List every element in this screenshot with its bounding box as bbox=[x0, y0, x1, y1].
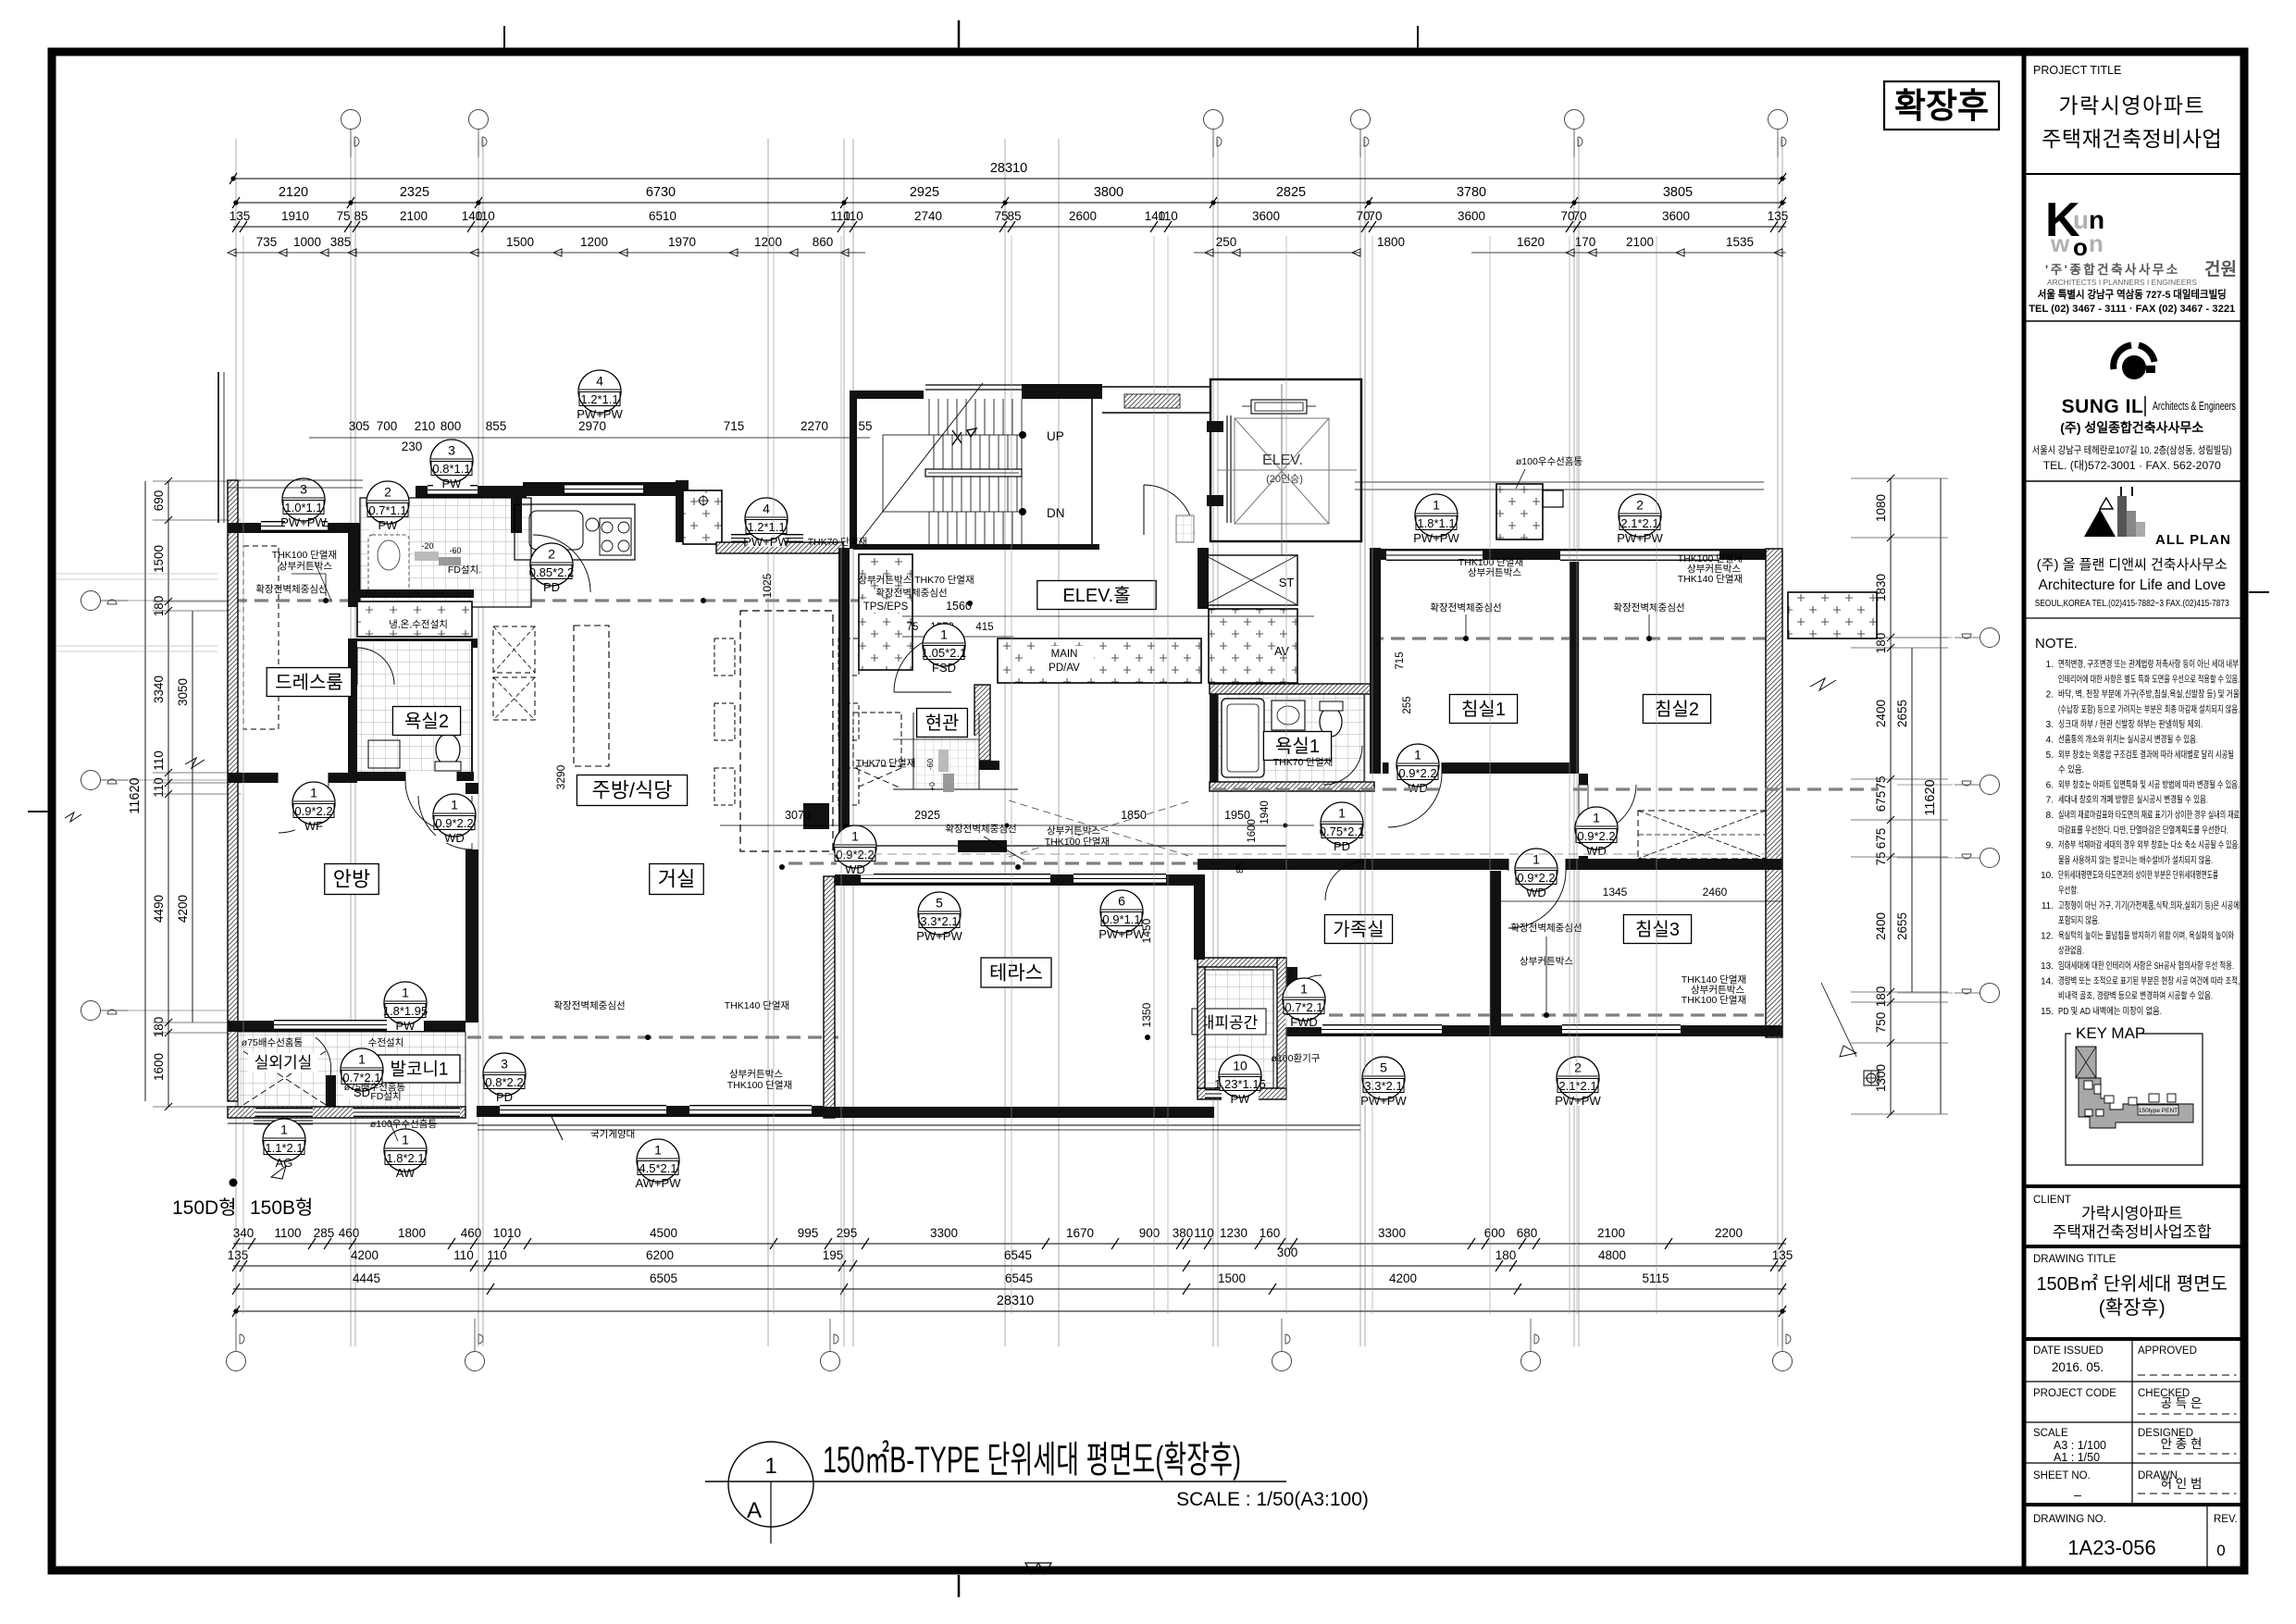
svg-text:2200: 2200 bbox=[1715, 1226, 1743, 1240]
svg-text:1.2*1.1: 1.2*1.1 bbox=[580, 392, 618, 406]
svg-text:실내의 재료마감표와 타도면의 재료 표기가 상이한 경우: 실내의 재료마감표와 타도면의 재료 표기가 상이한 경우 실내의 재료 bbox=[2058, 809, 2240, 821]
svg-text:1: 1 bbox=[1338, 806, 1346, 821]
svg-text:1600: 1600 bbox=[152, 1053, 166, 1081]
svg-text:ELEV.: ELEV. bbox=[1262, 452, 1303, 468]
svg-text:1500: 1500 bbox=[152, 545, 166, 573]
svg-text:1345: 1345 bbox=[1603, 886, 1628, 899]
svg-text:NOTE.: NOTE. bbox=[2035, 636, 2078, 651]
svg-text:건원: 건원 bbox=[2204, 259, 2237, 279]
svg-text:THK140 단열재: THK140 단열재 bbox=[725, 1000, 789, 1011]
svg-text:3290: 3290 bbox=[554, 764, 567, 789]
svg-text:300: 300 bbox=[1277, 1246, 1298, 1259]
svg-text:3050: 3050 bbox=[176, 678, 190, 706]
svg-text:TEL. (대)572-3001 · FAX. 562-20: TEL. (대)572-3001 · FAX. 562-2070 bbox=[2043, 459, 2221, 472]
svg-text:735: 735 bbox=[256, 235, 278, 249]
svg-text:SCALE : 1/50(A3:100): SCALE : 1/50(A3:100) bbox=[1176, 1489, 1369, 1510]
svg-text:마감표를 우선한다. 다만, 단열마감은 단열계획도를 우선: 마감표를 우선한다. 다만, 단열마감은 단열계획도를 우선한다. bbox=[2058, 824, 2228, 836]
svg-text:1080: 1080 bbox=[1874, 494, 1888, 522]
svg-text:PD: PD bbox=[1334, 839, 1350, 853]
svg-text:75: 75 bbox=[907, 622, 919, 633]
svg-text:1800: 1800 bbox=[398, 1226, 426, 1240]
svg-text:2270: 2270 bbox=[800, 419, 828, 433]
svg-text:FD설치: FD설치 bbox=[370, 1091, 401, 1102]
svg-text:3300: 3300 bbox=[1378, 1226, 1406, 1240]
svg-text:1200: 1200 bbox=[754, 235, 782, 249]
svg-text:0.85*2.2: 0.85*2.2 bbox=[529, 565, 574, 579]
svg-text:0: 0 bbox=[2216, 1542, 2225, 1559]
svg-text:6545: 6545 bbox=[1005, 1271, 1033, 1285]
svg-text:CLIENT: CLIENT bbox=[2033, 1195, 2071, 1206]
svg-text:THK70 단열재: THK70 단열재 bbox=[808, 537, 868, 548]
svg-text:6510: 6510 bbox=[649, 209, 676, 223]
svg-text:2740: 2740 bbox=[914, 209, 942, 223]
svg-text:2925: 2925 bbox=[914, 809, 940, 822]
svg-text:12.: 12. bbox=[2041, 931, 2054, 941]
svg-text:1230: 1230 bbox=[1220, 1226, 1247, 1240]
svg-text:85: 85 bbox=[1007, 209, 1021, 223]
svg-text:2016. 05.: 2016. 05. bbox=[2052, 1360, 2104, 1374]
svg-text:우선함.: 우선함. bbox=[2058, 886, 2079, 897]
svg-text:3: 3 bbox=[448, 443, 455, 458]
svg-text:2325: 2325 bbox=[400, 185, 429, 200]
svg-text:포함되지 않음.: 포함되지 않음. bbox=[2058, 915, 2100, 926]
svg-text:2655: 2655 bbox=[1895, 700, 1909, 727]
svg-text:-60: -60 bbox=[449, 546, 461, 555]
svg-text:A: A bbox=[747, 1498, 762, 1523]
svg-text:UP: UP bbox=[1047, 429, 1064, 443]
svg-text:–: – bbox=[2074, 1487, 2081, 1502]
svg-text:180: 180 bbox=[152, 1017, 166, 1038]
svg-text:1940: 1940 bbox=[1260, 800, 1271, 824]
svg-text:(확장후): (확장후) bbox=[2099, 1297, 2166, 1319]
svg-text:2400: 2400 bbox=[1874, 912, 1888, 940]
svg-text:3780: 3780 bbox=[1457, 185, 1486, 200]
svg-text:28310: 28310 bbox=[990, 161, 1027, 176]
svg-text:690: 690 bbox=[152, 490, 166, 512]
svg-text:PW: PW bbox=[396, 1019, 416, 1033]
svg-text:110: 110 bbox=[152, 777, 166, 798]
svg-text:0.9*2.2: 0.9*2.2 bbox=[1577, 829, 1615, 843]
svg-text:서울 특별시 강남구 역삼동 727-5 대일테크빌딩: 서울 특별시 강남구 역삼동 727-5 대일테크빌딩 bbox=[2038, 288, 2227, 301]
svg-text:서울시 강남구 테헤란로107길 10, 2층(삼성동, 성: 서울시 강남구 테헤란로107길 10, 2층(삼성동, 성림빌딩) bbox=[2032, 444, 2232, 456]
svg-text:3: 3 bbox=[300, 482, 307, 497]
svg-text:주택재건축정비사업: 주택재건축정비사업 bbox=[2042, 127, 2222, 151]
svg-text:255: 255 bbox=[1402, 696, 1413, 713]
svg-text:KEY MAP: KEY MAP bbox=[2076, 1024, 2145, 1042]
svg-text:1910: 1910 bbox=[281, 209, 309, 223]
svg-text:DATE ISSUED: DATE ISSUED bbox=[2033, 1345, 2104, 1357]
svg-text:THK100 단열재: THK100 단열재 bbox=[727, 1080, 792, 1091]
svg-text:85: 85 bbox=[1235, 862, 1246, 874]
svg-text:75: 75 bbox=[994, 209, 1008, 223]
svg-text:6730: 6730 bbox=[646, 185, 676, 200]
svg-text:안 종 현: 안 종 현 bbox=[2161, 1437, 2203, 1451]
svg-text:180: 180 bbox=[1496, 1248, 1517, 1262]
svg-text:460: 460 bbox=[461, 1226, 482, 1240]
svg-text:2825: 2825 bbox=[1276, 185, 1306, 200]
svg-text:4200: 4200 bbox=[176, 895, 190, 923]
svg-text:TEL (02) 3467 - 3111 · FAX (: TEL (02) 3467 - 3111 · FAX (02) 3467 - 3… bbox=[2029, 304, 2235, 315]
svg-text:1: 1 bbox=[1593, 811, 1600, 825]
svg-text:외부 창호는 외풍압 구조검토 결과에 따라 세대별로 달리: 외부 창호는 외풍압 구조검토 결과에 따라 세대별로 달리 시공될 bbox=[2058, 749, 2234, 761]
svg-text:외부 창호는 아파트 입면특화 및 시공 방법에 따라 변경: 외부 창호는 아파트 입면특화 및 시공 방법에 따라 변경될 수 있음. bbox=[2058, 778, 2240, 790]
svg-text:1600: 1600 bbox=[1247, 819, 1258, 843]
svg-text:1670: 1670 bbox=[1066, 1226, 1094, 1240]
svg-text:FWD: FWD bbox=[1290, 1015, 1318, 1029]
svg-text:170: 170 bbox=[1575, 235, 1596, 249]
svg-text:75: 75 bbox=[1874, 851, 1888, 865]
svg-text:공 득 은: 공 득 은 bbox=[2161, 1396, 2203, 1410]
svg-text:1: 1 bbox=[280, 1122, 288, 1137]
svg-text:1.8*2.1: 1.8*2.1 bbox=[386, 1151, 424, 1165]
svg-text:거실: 거실 bbox=[658, 868, 695, 891]
svg-text:냉,온,수전설치: 냉,온,수전설치 bbox=[389, 619, 448, 630]
svg-text:460: 460 bbox=[339, 1226, 360, 1240]
svg-text:110: 110 bbox=[152, 750, 166, 771]
svg-text:PW+PW: PW+PW bbox=[743, 535, 789, 549]
svg-text:150D형: 150D형 bbox=[172, 1197, 237, 1219]
svg-text:4490: 4490 bbox=[152, 895, 166, 923]
svg-text:저층부 석재마감 세대의 경우 외부 창호는 다소 축소 시: 저층부 석재마감 세대의 경우 외부 창호는 다소 축소 시공될 수 있음. bbox=[2058, 839, 2240, 851]
svg-text:비내력 골조, 경량벽 등으로 변경하여 시공할 수 있음.: 비내력 골조, 경량벽 등으로 변경하여 시공할 수 있음. bbox=[2058, 990, 2213, 1002]
svg-text:110: 110 bbox=[1158, 209, 1178, 223]
svg-text:11620: 11620 bbox=[1923, 779, 1938, 815]
svg-text:고정형이 아닌 가구, 기기(가전제품,식탁,의자,실외기: 고정형이 아닌 가구, 기기(가전제품,식탁,의자,실외기 등)은 시공에 bbox=[2058, 900, 2240, 911]
svg-text:PD: PD bbox=[543, 580, 560, 594]
svg-text:180: 180 bbox=[1874, 986, 1888, 1008]
svg-text:ø100우수선홈통: ø100우수선홈통 bbox=[1516, 455, 1583, 467]
svg-text:3800: 3800 bbox=[1094, 185, 1123, 200]
svg-text:AW: AW bbox=[396, 1166, 416, 1180]
svg-text:110: 110 bbox=[475, 209, 495, 223]
svg-text:85: 85 bbox=[354, 209, 367, 223]
svg-text:0.7*2.1: 0.7*2.1 bbox=[1285, 1000, 1322, 1014]
svg-text:10.: 10. bbox=[2041, 871, 2054, 881]
svg-text:욕실2: 욕실2 bbox=[404, 711, 449, 732]
svg-text:4445: 4445 bbox=[353, 1271, 380, 1285]
svg-text:5: 5 bbox=[936, 896, 943, 911]
svg-text:3805: 3805 bbox=[1663, 185, 1693, 200]
svg-text:ø100환기구: ø100환기구 bbox=[1272, 1053, 1321, 1064]
svg-text:160: 160 bbox=[1260, 1226, 1281, 1240]
svg-text:THK100 단열재: THK100 단열재 bbox=[272, 550, 337, 561]
svg-text:135: 135 bbox=[228, 1248, 249, 1262]
svg-text:28310: 28310 bbox=[997, 1294, 1034, 1308]
svg-text:WF: WF bbox=[304, 819, 323, 833]
svg-text:75: 75 bbox=[1874, 775, 1888, 789]
svg-text:욕실1: 욕실1 bbox=[1275, 736, 1320, 757]
svg-text:675: 675 bbox=[1874, 791, 1888, 812]
svg-text:800: 800 bbox=[441, 419, 462, 433]
svg-text:2970: 2970 bbox=[578, 419, 606, 433]
svg-text:1: 1 bbox=[940, 627, 948, 642]
svg-text:1A23-056: 1A23-056 bbox=[2067, 1536, 2155, 1559]
svg-text:2925: 2925 bbox=[910, 185, 939, 200]
svg-text:-20: -20 bbox=[421, 541, 433, 551]
svg-text:WD: WD bbox=[444, 831, 465, 845]
svg-text:600: 600 bbox=[1484, 1226, 1506, 1240]
svg-text:150㎡B-TYPE 단위세대 평면도(확장후): 150㎡B-TYPE 단위세대 평면도(확장후) bbox=[823, 1440, 1241, 1481]
svg-text:THK70 단열재: THK70 단열재 bbox=[1273, 757, 1334, 768]
svg-text:PW+PW: PW+PW bbox=[1098, 927, 1145, 941]
svg-text:75: 75 bbox=[336, 209, 350, 223]
svg-text:4800: 4800 bbox=[1598, 1248, 1626, 1262]
svg-text:4500: 4500 bbox=[650, 1226, 677, 1240]
svg-text:0.9*2.2: 0.9*2.2 bbox=[1398, 766, 1436, 780]
svg-text:210: 210 bbox=[415, 419, 436, 433]
svg-text:세대내 창호의 개폐 방향은 실시공시 변경될 수 있음.: 세대내 창호의 개폐 방향은 실시공시 변경될 수 있음. bbox=[2058, 794, 2208, 806]
svg-text:단위세대평면도와 타도면과의 상이한 부분은 단위세대평면도: 단위세대평면도와 타도면과의 상이한 부분은 단위세대평면도를 bbox=[2058, 869, 2218, 881]
svg-text:2.1*2.1: 2.1*2.1 bbox=[1558, 1079, 1596, 1093]
svg-text:2120: 2120 bbox=[279, 185, 308, 200]
svg-text:8.: 8. bbox=[2046, 811, 2054, 821]
svg-text:확장전벽체중심선: 확장전벽체중심선 bbox=[1430, 601, 1501, 614]
svg-text:2.: 2. bbox=[2046, 690, 2054, 700]
svg-text:2: 2 bbox=[1574, 1060, 1582, 1075]
svg-text:SCALE: SCALE bbox=[2033, 1428, 2068, 1439]
svg-text:w: w bbox=[2050, 229, 2070, 257]
svg-text:TPS/EPS: TPS/EPS bbox=[863, 601, 909, 613]
svg-text:PROJECT CODE: PROJECT CODE bbox=[2033, 1388, 2116, 1399]
svg-text:A3 : 1/100: A3 : 1/100 bbox=[2054, 1439, 2106, 1452]
svg-text:임대세대에 대한 인테리어 사항은 SH공사 협의사항 우선: 임대세대에 대한 인테리어 사항은 SH공사 협의사항 우선 적용. bbox=[2058, 960, 2234, 972]
svg-text:860: 860 bbox=[813, 235, 834, 249]
svg-text:PW+PW: PW+PW bbox=[577, 407, 623, 421]
svg-text:110: 110 bbox=[453, 1248, 474, 1262]
svg-text:1.1*2.1: 1.1*2.1 bbox=[265, 1141, 303, 1155]
svg-text:1: 1 bbox=[851, 829, 859, 844]
svg-text:MAIN: MAIN bbox=[1051, 649, 1078, 660]
svg-text:715: 715 bbox=[1395, 651, 1406, 669]
svg-text:테라스: 테라스 bbox=[989, 962, 1043, 984]
svg-text:확장전벽체중심선: 확장전벽체중심선 bbox=[553, 999, 625, 1011]
svg-text:1: 1 bbox=[402, 986, 409, 1000]
svg-text:1: 1 bbox=[1433, 498, 1440, 513]
svg-text:1.0*1.1: 1.0*1.1 bbox=[284, 501, 322, 514]
svg-text:1: 1 bbox=[654, 1143, 662, 1158]
svg-text:3600: 3600 bbox=[1458, 209, 1485, 223]
svg-text:3340: 3340 bbox=[152, 676, 166, 703]
svg-text:상부커튼박스: 상부커튼박스 bbox=[279, 561, 332, 572]
svg-text:가족실: 가족실 bbox=[1333, 919, 1384, 940]
svg-text:1.23*1.15: 1.23*1.15 bbox=[1214, 1077, 1266, 1091]
svg-text:확장전벽체중심선: 확장전벽체중심선 bbox=[945, 823, 1016, 835]
svg-text:385: 385 bbox=[330, 235, 352, 249]
svg-text:FD설치.: FD설치. bbox=[448, 564, 481, 576]
svg-text:0.9*2.2: 0.9*2.2 bbox=[836, 848, 874, 862]
svg-text:DN: DN bbox=[1047, 506, 1065, 520]
svg-text:대피공간: 대피공간 bbox=[1200, 1014, 1259, 1032]
svg-text:415: 415 bbox=[975, 622, 993, 633]
svg-text:135: 135 bbox=[230, 209, 251, 223]
svg-text:110: 110 bbox=[843, 209, 863, 223]
svg-text:3.3*2.1: 3.3*2.1 bbox=[920, 914, 958, 928]
svg-text:WD: WD bbox=[1526, 886, 1546, 899]
svg-text:5115: 5115 bbox=[1642, 1271, 1669, 1285]
svg-text:PW: PW bbox=[379, 518, 399, 532]
svg-text:1.05*2.1: 1.05*2.1 bbox=[922, 646, 966, 660]
svg-text:195: 195 bbox=[823, 1248, 844, 1262]
svg-text:인테리어에 대한 사항은 별도 특화 도면을 우선으로 적용: 인테리어에 대한 사항은 별도 특화 도면을 우선으로 적용할 수 있음. bbox=[2058, 674, 2240, 685]
svg-text:ø100우수선홈통: ø100우수선홈통 bbox=[370, 1118, 438, 1130]
svg-text:380: 380 bbox=[1173, 1226, 1194, 1240]
svg-text:150B형: 150B형 bbox=[250, 1197, 313, 1219]
svg-text:11.: 11. bbox=[2042, 901, 2054, 911]
svg-text:180: 180 bbox=[152, 596, 166, 617]
svg-text:선홈통의 개소와 위치는 실시공시 변경될 수 있음.: 선홈통의 개소와 위치는 실시공시 변경될 수 있음. bbox=[2058, 734, 2198, 746]
svg-text:10: 10 bbox=[1233, 1059, 1247, 1073]
svg-text:295: 295 bbox=[837, 1226, 858, 1240]
svg-text:상부커튼박스: 상부커튼박스 bbox=[729, 1069, 783, 1080]
svg-text:900: 900 bbox=[1139, 1226, 1160, 1240]
svg-text:확장전벽체중심선: 확장전벽체중심선 bbox=[255, 583, 327, 595]
svg-text:2100: 2100 bbox=[400, 209, 428, 223]
svg-text:Architecture for Life and Love: Architecture for Life and Love bbox=[2039, 577, 2226, 593]
svg-text:SEOUL,KOREA TEL.(02)415-7882~: SEOUL,KOREA TEL.(02)415-7882~3 FAX.(02)4… bbox=[2035, 599, 2229, 609]
svg-text:1620: 1620 bbox=[1517, 235, 1545, 249]
svg-text:3070: 3070 bbox=[785, 809, 811, 822]
svg-text:1850: 1850 bbox=[1121, 809, 1147, 822]
svg-text:1025: 1025 bbox=[761, 573, 774, 598]
svg-text:4200: 4200 bbox=[351, 1248, 379, 1262]
svg-text:PW+PW: PW+PW bbox=[1555, 1094, 1601, 1108]
svg-text:SUNG IL: SUNG IL bbox=[2062, 396, 2144, 417]
svg-text:0.9*2.2: 0.9*2.2 bbox=[1517, 871, 1555, 885]
svg-text:1: 1 bbox=[310, 786, 317, 800]
svg-text:5: 5 bbox=[1380, 1060, 1387, 1075]
svg-text:1010: 1010 bbox=[493, 1226, 521, 1240]
svg-text:침실2: 침실2 bbox=[1655, 699, 1699, 720]
svg-text:1: 1 bbox=[402, 1133, 409, 1147]
svg-text:1.8*1.1: 1.8*1.1 bbox=[1417, 516, 1455, 530]
svg-text:-60: -60 bbox=[925, 759, 935, 771]
svg-text:수 있음.: 수 있음. bbox=[2058, 764, 2084, 775]
svg-text:+0: +0 bbox=[927, 782, 937, 791]
svg-text:0.8*2.2: 0.8*2.2 bbox=[485, 1075, 523, 1089]
svg-text:4.: 4. bbox=[2046, 736, 2054, 746]
svg-text:3.: 3. bbox=[2046, 720, 2054, 730]
svg-text:PW+PW: PW+PW bbox=[280, 515, 327, 529]
svg-text:55: 55 bbox=[858, 419, 872, 433]
svg-text:150type PENT: 150type PENT bbox=[2139, 1108, 2178, 1114]
svg-text:PROJECT TITLE: PROJECT TITLE bbox=[2033, 64, 2121, 77]
svg-text:2: 2 bbox=[384, 485, 391, 500]
svg-text:2100: 2100 bbox=[1597, 1226, 1625, 1240]
svg-text:13.: 13. bbox=[2041, 961, 2054, 972]
svg-text:2460: 2460 bbox=[1703, 886, 1728, 899]
svg-text:6200: 6200 bbox=[646, 1248, 674, 1262]
svg-text:715: 715 bbox=[724, 419, 745, 433]
svg-text:6545: 6545 bbox=[1004, 1248, 1032, 1262]
svg-text:ELEV.홀: ELEV.홀 bbox=[1062, 585, 1130, 606]
svg-text:상부커튼박스 THK70 단열재: 상부커튼박스 THK70 단열재 bbox=[858, 575, 974, 586]
svg-text:3300: 3300 bbox=[930, 1226, 958, 1240]
svg-text:PW: PW bbox=[442, 477, 463, 490]
svg-text:110: 110 bbox=[487, 1248, 507, 1262]
svg-text:1: 1 bbox=[764, 1454, 776, 1479]
svg-text:확장후: 확장후 bbox=[1894, 87, 1989, 125]
svg-text:14.: 14. bbox=[2041, 976, 2054, 986]
svg-text:7.: 7. bbox=[2046, 796, 2054, 806]
svg-text:욕실턱의 높이는 물넘침을 방지하기 위함 이며, 욕실화의: 욕실턱의 높이는 물넘침을 방지하기 위함 이며, 욕실화의 높이와 bbox=[2058, 929, 2234, 941]
svg-text:6505: 6505 bbox=[650, 1271, 677, 1285]
svg-text:PW+PW: PW+PW bbox=[1413, 531, 1459, 545]
svg-text:0.7*1.1: 0.7*1.1 bbox=[368, 503, 406, 517]
svg-text:국기게양대: 국기게양대 bbox=[590, 1129, 635, 1140]
svg-text:0.9*2.2: 0.9*2.2 bbox=[435, 816, 473, 830]
svg-text:PW: PW bbox=[1231, 1092, 1251, 1106]
svg-text:750: 750 bbox=[1874, 1012, 1888, 1034]
svg-text:150B㎡ 단위세대 평면도: 150B㎡ 단위세대 평면도 bbox=[2036, 1272, 2228, 1295]
svg-text:침실1: 침실1 bbox=[1461, 699, 1506, 720]
svg-text:1970: 1970 bbox=[668, 235, 696, 249]
svg-text:가락시영아파트: 가락시영아파트 bbox=[2081, 1205, 2182, 1222]
svg-text:바닥, 벽, 천장 부분에 가구(주방,침실,욕실,신발장: 바닥, 벽, 천장 부분에 가구(주방,침실,욕실,신발장 등) 및 거울 bbox=[2058, 689, 2240, 700]
svg-text:2.1*2.1: 2.1*2.1 bbox=[1620, 516, 1658, 530]
svg-text:4200: 4200 bbox=[1389, 1271, 1417, 1285]
svg-text:발코니1: 발코니1 bbox=[390, 1060, 448, 1080]
svg-text:9.: 9. bbox=[2046, 841, 2054, 851]
svg-text:5.: 5. bbox=[2046, 750, 2054, 761]
svg-text:680: 680 bbox=[1517, 1226, 1538, 1240]
svg-text:1000: 1000 bbox=[293, 235, 321, 249]
svg-text:THK100 단열재: THK100 단열재 bbox=[1682, 995, 1746, 1006]
svg-text:현관: 현관 bbox=[925, 713, 960, 734]
svg-text:3: 3 bbox=[501, 1057, 508, 1072]
svg-text:1200: 1200 bbox=[580, 235, 608, 249]
svg-text:PD: PD bbox=[496, 1090, 513, 1104]
svg-text:확장전벽체중심선: 확장전벽체중심선 bbox=[875, 587, 947, 599]
svg-text:드레스룸: 드레스룸 bbox=[275, 672, 343, 693]
svg-text:4: 4 bbox=[763, 502, 770, 516]
svg-text:SHEET NO.: SHEET NO. bbox=[2033, 1470, 2091, 1481]
svg-text:135: 135 bbox=[1768, 209, 1789, 223]
svg-text:70: 70 bbox=[1368, 209, 1382, 223]
svg-text:1: 1 bbox=[1414, 748, 1421, 762]
svg-text:3.3*2.1: 3.3*2.1 bbox=[1364, 1079, 1402, 1093]
svg-text:싱크대 하부 / 현관 신발장 하부는 판넬히팅 제외.: 싱크대 하부 / 현관 신발장 하부는 판넬히팅 제외. bbox=[2058, 718, 2203, 730]
svg-text:1: 1 bbox=[358, 1052, 366, 1067]
svg-text:4.5*2.1: 4.5*2.1 bbox=[639, 1161, 676, 1175]
svg-text:u: u bbox=[2073, 205, 2089, 234]
svg-text:WD: WD bbox=[845, 862, 865, 876]
svg-text:1100: 1100 bbox=[274, 1226, 301, 1240]
svg-text:AW+PW: AW+PW bbox=[636, 1176, 682, 1190]
svg-text:1: 1 bbox=[451, 798, 458, 812]
svg-text:ø75배수선홈통: ø75배수선홈통 bbox=[242, 1036, 304, 1048]
svg-text:0.75*2.1: 0.75*2.1 bbox=[1320, 824, 1364, 838]
svg-text:PD/AV: PD/AV bbox=[1049, 663, 1080, 674]
svg-text:주택재건축정비사업조합: 주택재건축정비사업조합 bbox=[2053, 1223, 2212, 1241]
svg-text:70: 70 bbox=[1572, 209, 1586, 223]
svg-text:3600: 3600 bbox=[1662, 209, 1690, 223]
svg-text:6.: 6. bbox=[2046, 780, 2054, 790]
svg-text:상부커튼박스: 상부커튼박스 bbox=[1468, 567, 1521, 578]
svg-text:THK70 단열재: THK70 단열재 bbox=[856, 758, 916, 769]
svg-text:PW+PW: PW+PW bbox=[1360, 1094, 1407, 1108]
svg-text:1500: 1500 bbox=[1218, 1271, 1246, 1285]
svg-text:안방: 안방 bbox=[333, 868, 370, 891]
svg-text:면적변경, 구조변경 또는 관계법령 저촉사항 등이 아닌: 면적변경, 구조변경 또는 관계법령 저촉사항 등이 아닌 세대 내부 bbox=[2058, 658, 2239, 670]
svg-text:0.9*2.2: 0.9*2.2 bbox=[294, 804, 332, 818]
svg-text:PD 및 AD 내벽에는 미장이 없음.: PD 및 AD 내벽에는 미장이 없음. bbox=[2058, 1005, 2162, 1017]
svg-text:(주) 올 플랜 디앤씨 건축사사무소: (주) 올 플랜 디앤씨 건축사사무소 bbox=[2037, 557, 2228, 573]
svg-text:1.: 1. bbox=[2046, 660, 2054, 670]
svg-text:실외기실: 실외기실 bbox=[254, 1054, 313, 1072]
svg-text:700: 700 bbox=[377, 419, 398, 433]
svg-text:1500: 1500 bbox=[506, 235, 534, 249]
svg-text:11620: 11620 bbox=[128, 777, 143, 813]
